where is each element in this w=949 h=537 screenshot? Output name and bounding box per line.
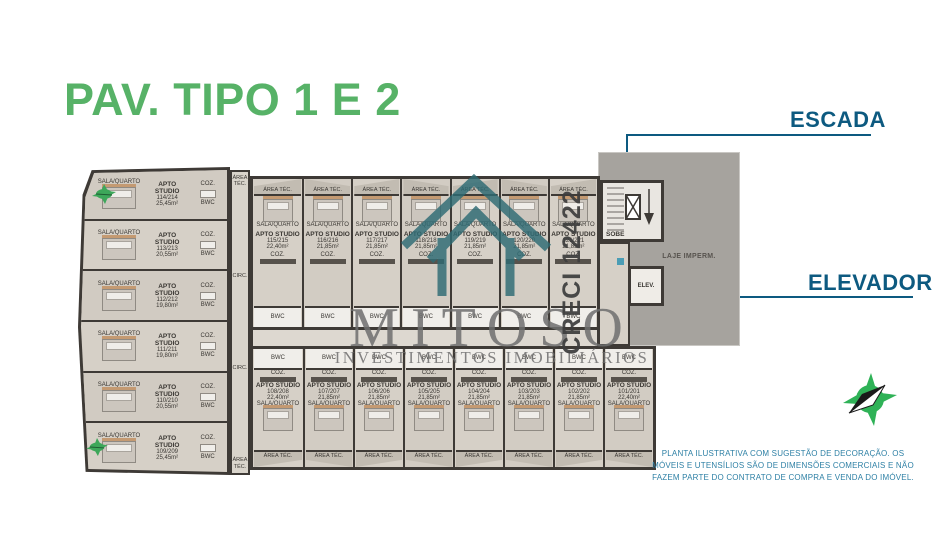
bed [364,408,394,431]
area-tec-strip: ÁREA TÉC. [406,450,452,467]
escada-label: ESCADA [790,107,886,133]
disclaimer-line: FAZEM PARTE DO CONTRATO DE COMPRA E VEND… [652,472,914,484]
laje-label: LAJE IMPERM. [661,253,717,261]
coz-label: COZ. [522,370,536,377]
unit-info: APTO STUDIO 106/206 21,85m² [357,382,401,401]
circ-label: CIRC. [233,273,248,279]
coz-label: COZ. [270,252,284,259]
coz-label: COZ. [622,370,636,377]
unit-info: APTO STUDIO 109/209 25,45m² [146,435,188,461]
bed [464,408,494,431]
area-tec-label: ÁREA TÉC. [263,187,292,193]
area-tec-strip: ÁREA TÉC. [456,450,502,467]
unit-area: 25,45m² [146,201,188,207]
bed [313,199,343,222]
coz-label: COZ. [201,384,215,391]
kitchen-counter [310,259,346,264]
apartment-unit: ÁREA TÉC. SALA/QUARTO APTO STUDIO 116/21… [302,179,351,327]
unit-area: 21,85m² [355,244,399,250]
bwc-label: BWC [271,314,285,321]
bwc-label: BWC [201,454,215,461]
bwc-label: BWC [201,200,215,207]
area-tec-label: ÁREA TÉC. [365,453,394,459]
area-tec-strip: ÁREA TÉC. [506,450,552,467]
kitchen-counter [200,292,216,300]
unit-info: APTO STUDIO 111/211 19,80m² [146,333,188,359]
disclaimer-line: PLANTA ILUSTRATIVA COM SUGESTÃO DE DECOR… [652,448,914,460]
apartment-unit: SALA/QUARTO APTO STUDIO 113/213 20,55m² … [81,221,227,272]
area-tec-label: ÁREA TÉC. [315,453,344,459]
bwc-label: BWC [201,302,215,309]
bed [414,408,444,431]
unit-area: 25,45m² [146,455,188,461]
sala-quarto-label: SALA/QUARTO [306,222,348,229]
area-tec-label: ÁREA TÉC. [313,187,342,193]
bathroom: BWC [254,306,301,327]
area-tec-strip: ÁREA TÉC. [356,450,402,467]
kitchen-counter [260,259,296,264]
bathroom: BWC [254,349,302,370]
area-tec-label: ÁREA TÉC. [515,453,544,459]
left-wing: SALA/QUARTO APTO STUDIO 114/214 25,45m² … [78,167,230,475]
apartment-unit: SALA/QUARTO APTO STUDIO 111/211 19,80m² … [81,322,227,373]
apartment-unit: SALA/QUARTO APTO STUDIO 112/212 19,80m² … [81,271,227,322]
kitchen-counter [200,342,216,350]
area-tec-strip: ÁREA TÉC. [606,450,652,467]
apartment-unit: ÁREA TÉC. SALA/QUARTO APTO STUDIO 115/21… [253,179,302,327]
bwc-label: BWC [201,251,215,258]
area-tec-strip: ÁREA TÉC. [254,450,302,467]
creci-number: CRECI 12422 [558,157,588,387]
area-tec-label: ÁREA TÉC. [232,457,248,470]
bed [263,408,293,431]
bed [102,289,136,311]
unit-type-label: APTO STUDIO [146,435,188,449]
kitchen-counter [200,190,216,198]
bed [564,408,594,431]
unit-type-label: APTO STUDIO [146,232,188,246]
unit-type-label: APTO STUDIO [146,333,188,347]
unit-type-label: APTO STUDIO [357,382,401,389]
sala-quarto-label: SALA/QUARTO [356,222,398,229]
unit-type-label: APTO STUDIO [407,382,451,389]
kitchen-counter [200,393,216,401]
plant-icon [92,184,116,204]
area-tec-label: ÁREA TÉC. [565,453,594,459]
elevator-shaft-label: ELEV. [638,283,655,290]
coz-label: COZ. [201,181,215,188]
area-tec-label: ÁREA TÉC. [264,453,293,459]
coz-label: COZ. [201,333,215,340]
area-tec-strip: ÁREA TÉC. [254,179,301,196]
page-title: PAV. TIPO 1 E 2 [64,74,401,126]
unit-type-label: APTO STUDIO [146,283,188,297]
area-tec-strip: ÁREA TÉC. [305,179,350,196]
area-tec-label: ÁREA TÉC. [415,453,444,459]
bed [102,238,136,260]
plant-icon [86,438,108,456]
coz-label: COZ. [372,370,386,377]
kitchen-counter [359,259,395,264]
unit-info: APTO STUDIO 103/203 21,85m² [507,382,551,401]
compass-icon [840,372,902,428]
coz-label: COZ. [271,370,285,377]
stair-core: SOBE [600,180,664,242]
unit-area: 20,55m² [146,252,188,258]
unit-info: APTO STUDIO 110/210 20,55m² [146,384,188,410]
disclaimer-line: MÓVEIS E UTENSÍLIOS SÃO DE DIMENSÕES COM… [652,460,914,472]
bed [263,199,293,222]
unit-area: 20,55m² [146,404,188,410]
circulation-strip: ÁREA TÉC. CIRC. CIRC. ÁREA TÉC. [230,170,250,475]
coz-label: COZ. [422,370,436,377]
mitoso-logo-icon [398,172,563,300]
bed [102,339,136,361]
unit-type-label: APTO STUDIO [256,382,300,389]
bwc-label: BWC [321,314,335,321]
unit-info: APTO STUDIO 113/213 20,55m² [146,232,188,258]
unit-area: 22,40m² [255,244,299,250]
bwc-label: BWC [271,355,285,362]
bed [314,408,344,431]
left-wing-units: SALA/QUARTO APTO STUDIO 114/214 25,45m² … [81,170,227,472]
area-tec-strip: ÁREA TÉC. [354,179,399,196]
coz-label: COZ. [472,370,486,377]
area-tec-strip: ÁREA TÉC. [556,450,602,467]
unit-type-label: APTO STUDIO [355,231,399,238]
unit-info: APTO STUDIO 112/212 19,80m² [146,283,188,309]
unit-type-label: APTO STUDIO [507,382,551,389]
area-tec-label: ÁREA TÉC. [465,453,494,459]
brand-tagline: INVESTIMENTOS IMOBILIÁRIOS [335,348,649,368]
unit-type-label: APTO STUDIO [307,382,351,389]
sobe-label: SOBE [606,231,624,238]
area-tec-label: ÁREA TÉC. [615,453,644,459]
bathroom: BWC [305,306,350,327]
bed [514,408,544,431]
unit-type-label: APTO STUDIO [607,382,651,389]
unit-info: APTO STUDIO 114/214 25,45m² [146,181,188,207]
coz-label: COZ. [201,283,215,290]
area-tec-strip: ÁREA TÉC. [306,450,352,467]
unit-info: APTO STUDIO 104/204 21,85m² [457,382,501,401]
unit-type-label: APTO STUDIO [146,384,188,398]
flyer-canvas: PAV. TIPO 1 E 2 ESCADA ELEVADOR LAJE IMP… [0,0,949,537]
area-tec-label: ÁREA TÉC. [232,175,248,188]
unit-info: APTO STUDIO 105/205 21,85m² [407,382,451,401]
apartment-unit: SALA/QUARTO APTO STUDIO 110/210 20,55m² … [81,373,227,424]
escada-leader-line [626,134,871,136]
coz-label: COZ. [321,252,335,259]
unit-type-label: APTO STUDIO [306,231,350,238]
disclaimer-text: PLANTA ILUSTRATIVA COM SUGESTÃO DE DECOR… [652,448,914,484]
unit-area: 21,85m² [306,244,350,250]
kitchen-counter [200,444,216,452]
bed [614,408,644,431]
unit-info: APTO STUDIO 115/215 22,40m² [255,231,299,250]
page-title-main: TIPO 1 E 2 [173,74,401,125]
unit-info: APTO STUDIO 107/207 21,85m² [307,382,351,401]
bed [362,199,392,222]
unit-info: APTO STUDIO 116/216 21,85m² [306,231,350,250]
area-tec-label: ÁREA TÉC. [363,187,392,193]
unit-area: 19,80m² [146,303,188,309]
unit-info: APTO STUDIO 117/217 21,85m² [355,231,399,250]
coz-label: COZ. [201,232,215,239]
apartment-unit: BWC COZ. APTO STUDIO 108/208 22,40m² SAL… [253,349,303,467]
bwc-label: BWC [201,352,215,359]
circ-label: CIRC. [233,365,248,371]
unit-type-label: APTO STUDIO [146,181,188,195]
unit-type-label: APTO STUDIO [255,231,299,238]
sala-quarto-label: SALA/QUARTO [256,222,298,229]
elevador-label: ELEVADOR [808,270,933,296]
washer-icon [617,258,624,265]
coz-label: COZ. [322,370,336,377]
bwc-label: BWC [201,403,215,410]
unit-type-label: APTO STUDIO [457,382,501,389]
page-title-prefix: PAV. [64,74,173,125]
unit-info: APTO STUDIO 101/201 22,40m² [607,382,651,401]
kitchen-counter [200,241,216,249]
unit-info: APTO STUDIO 108/208 22,40m² [256,382,300,401]
coz-label: COZ. [370,252,384,259]
bed [102,390,136,412]
unit-area: 19,80m² [146,353,188,359]
coz-label: COZ. [201,435,215,442]
